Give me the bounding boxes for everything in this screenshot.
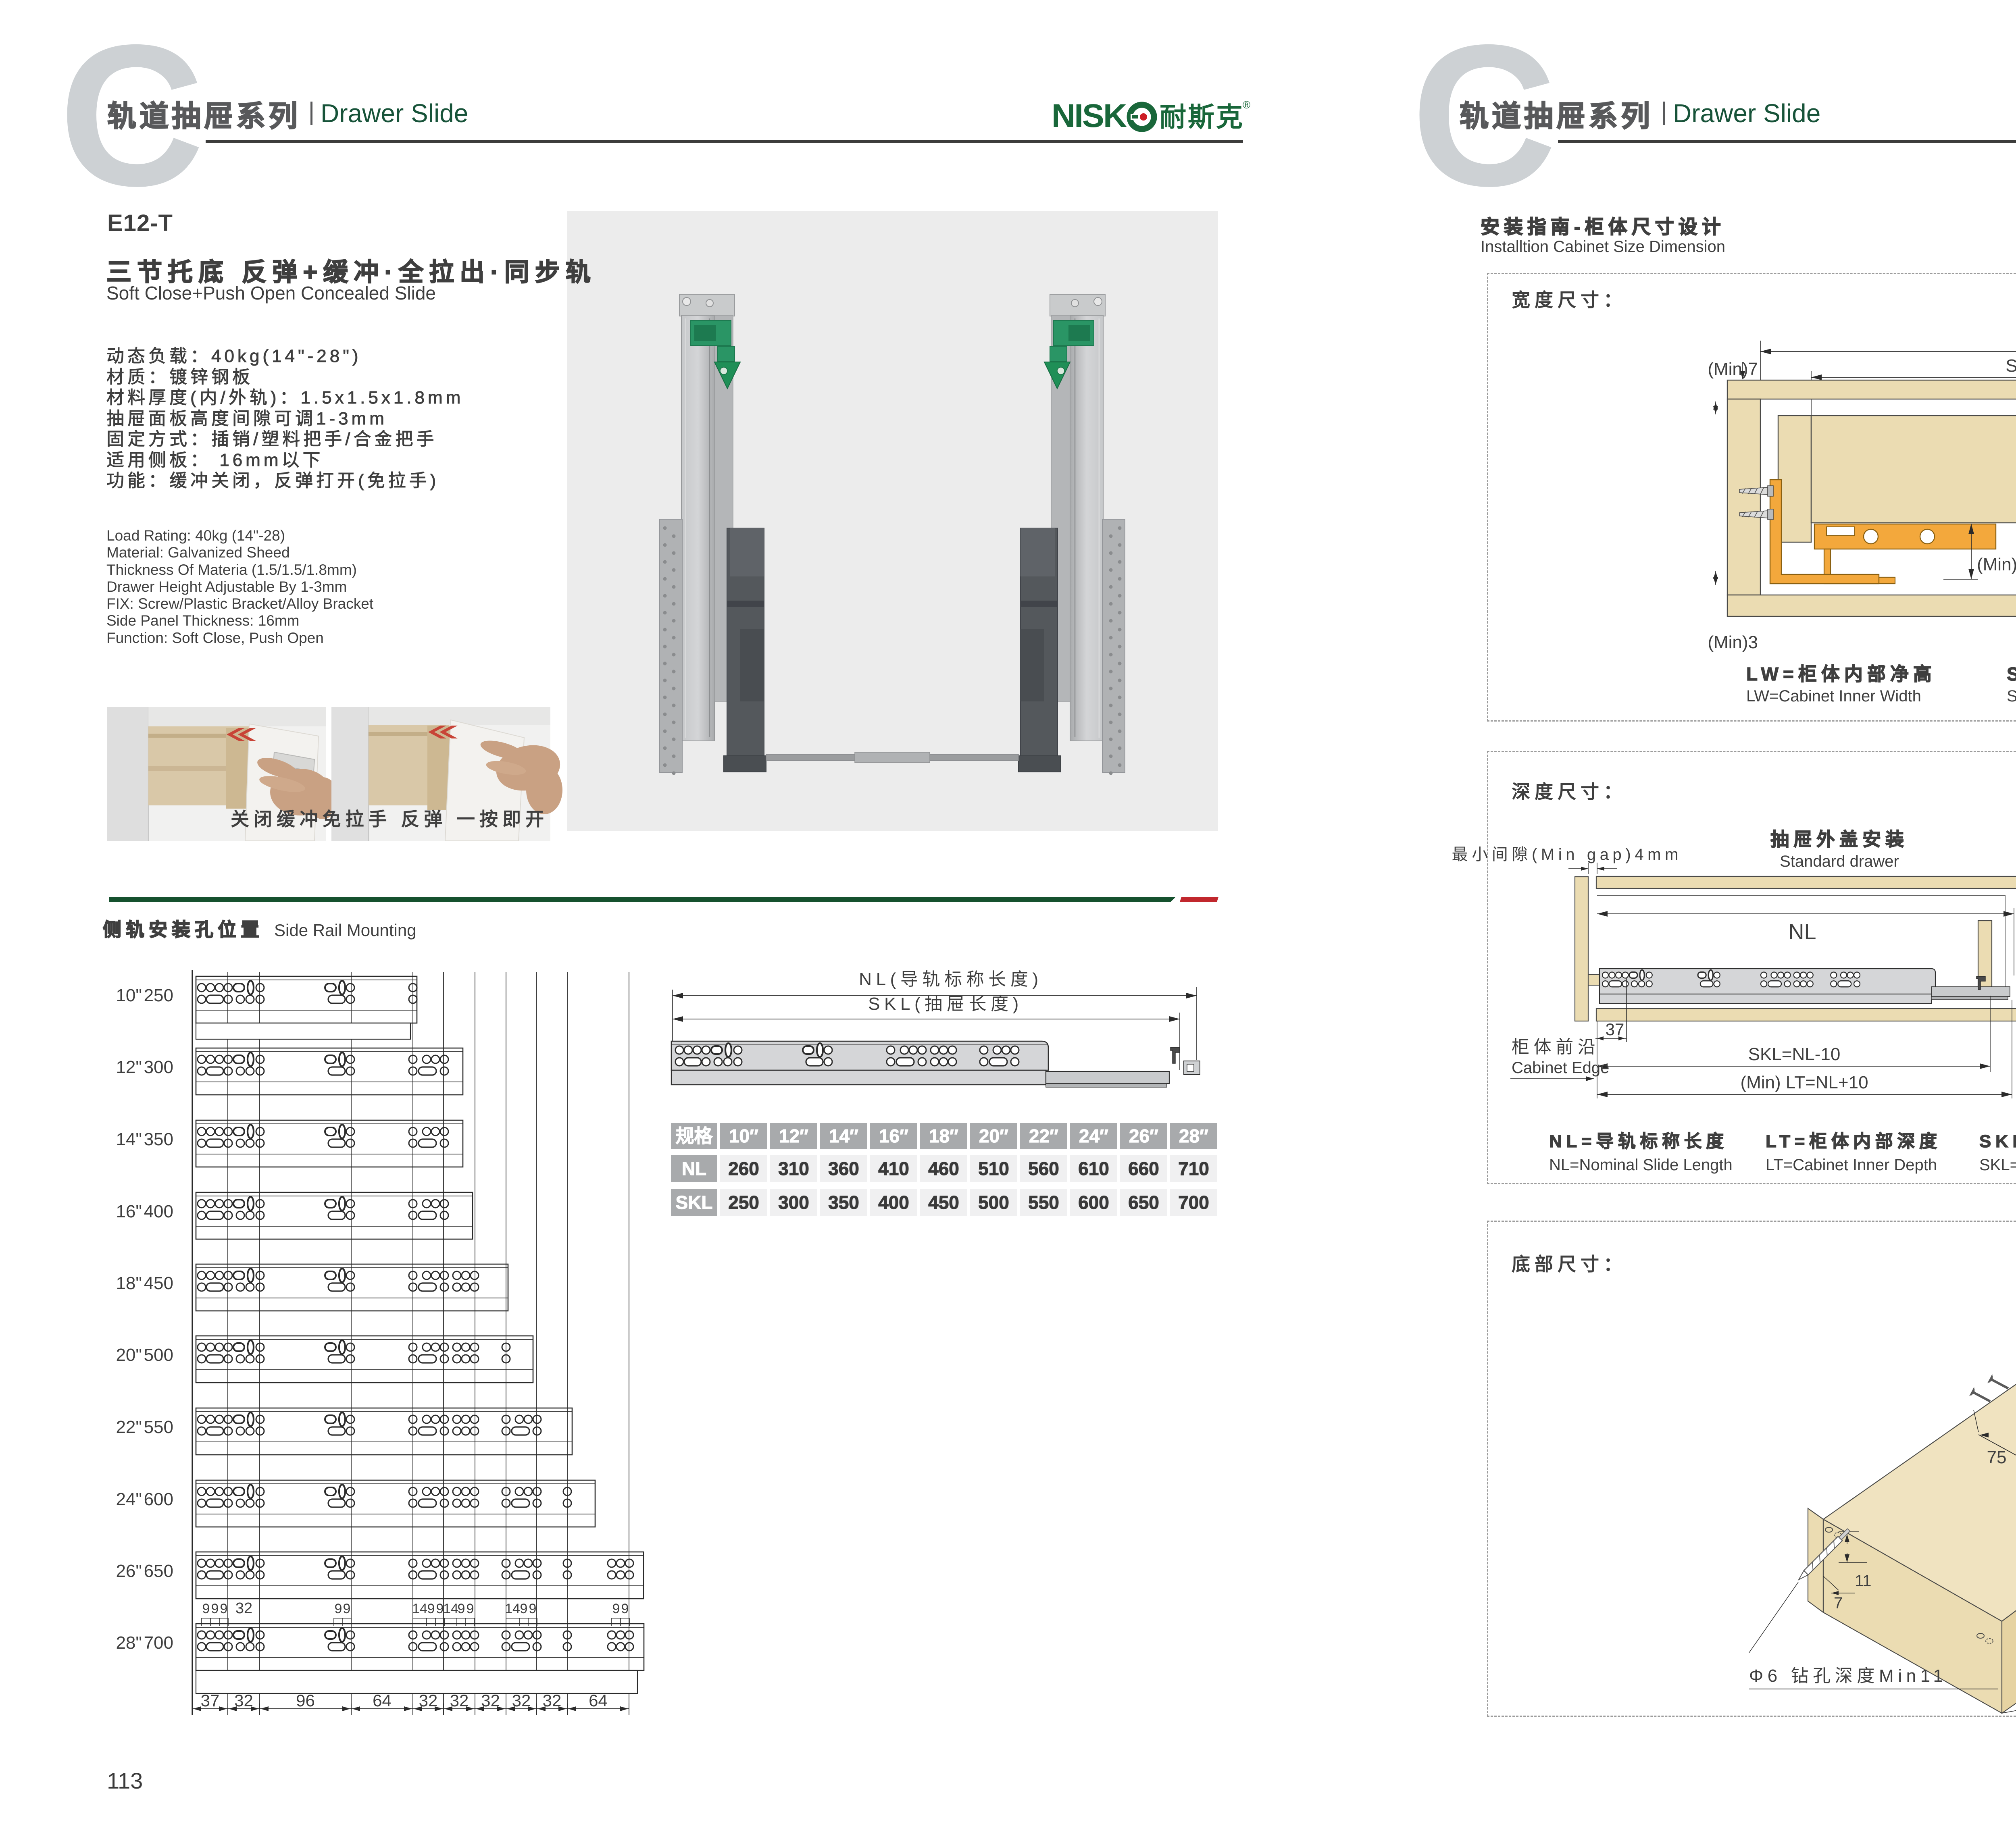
svg-text:9: 9 [436,1601,444,1616]
svg-text:37: 37 [201,1691,220,1710]
svg-text:16": 16" [116,1202,142,1221]
svg-text:32: 32 [543,1691,562,1710]
svg-text:SKL(抽屉长度): SKL(抽屉长度) [868,994,1023,1014]
svg-text:NL(导轨标称长度): NL(导轨标称长度) [859,969,1043,989]
svg-text:250: 250 [144,986,173,1005]
svg-text:14": 14" [116,1129,142,1149]
svg-text:24": 24" [116,1489,142,1509]
svg-text:14: 14 [443,1601,458,1616]
svg-text:K: K [1103,100,1127,134]
svg-text:32: 32 [234,1691,253,1710]
svg-text:32: 32 [419,1691,438,1710]
svg-text:450: 450 [144,1273,173,1293]
svg-text:500: 500 [144,1345,173,1365]
svg-text:9: 9 [529,1601,537,1616]
svg-text:32: 32 [235,1600,252,1617]
svg-text:700: 700 [144,1633,173,1653]
svg-text:耐斯克: 耐斯克 [1160,102,1244,132]
svg-text:12": 12" [116,1057,142,1077]
svg-text:300: 300 [144,1057,173,1077]
svg-text:32: 32 [450,1691,469,1710]
svg-text:免拉手 反弹 一按即开: 免拉手 反弹 一按即开 [322,809,548,830]
svg-text:550: 550 [144,1417,173,1437]
svg-text:9: 9 [467,1601,474,1616]
svg-text:9: 9 [612,1601,620,1616]
svg-text:14: 14 [412,1601,427,1616]
svg-text:28": 28" [116,1633,142,1653]
svg-text:32: 32 [512,1691,531,1710]
svg-text:32: 32 [481,1691,500,1710]
svg-text:9: 9 [427,1601,435,1616]
svg-text:600: 600 [144,1489,173,1509]
svg-text:®: ® [1243,100,1250,111]
svg-text:10": 10" [116,986,142,1005]
svg-text:9: 9 [621,1601,629,1616]
svg-text:9: 9 [520,1601,528,1616]
svg-text:9: 9 [202,1601,210,1616]
svg-text:22": 22" [116,1417,142,1437]
svg-text:650: 650 [144,1561,173,1581]
svg-text:NIS: NIS [1052,100,1103,134]
svg-text:9: 9 [335,1601,342,1616]
svg-text:9: 9 [220,1601,228,1616]
svg-text:9: 9 [458,1601,465,1616]
svg-text:64: 64 [589,1691,608,1710]
svg-text:96: 96 [296,1691,315,1710]
svg-text:350: 350 [144,1129,173,1149]
svg-text:关闭缓冲: 关闭缓冲 [231,809,323,830]
svg-text:18": 18" [116,1273,142,1293]
svg-text:64: 64 [373,1691,392,1710]
svg-text:400: 400 [144,1202,173,1221]
svg-text:26": 26" [116,1561,142,1581]
svg-text:9: 9 [211,1601,219,1616]
svg-text:20": 20" [116,1345,142,1365]
svg-text:14: 14 [505,1601,520,1616]
svg-text:9: 9 [343,1601,351,1616]
